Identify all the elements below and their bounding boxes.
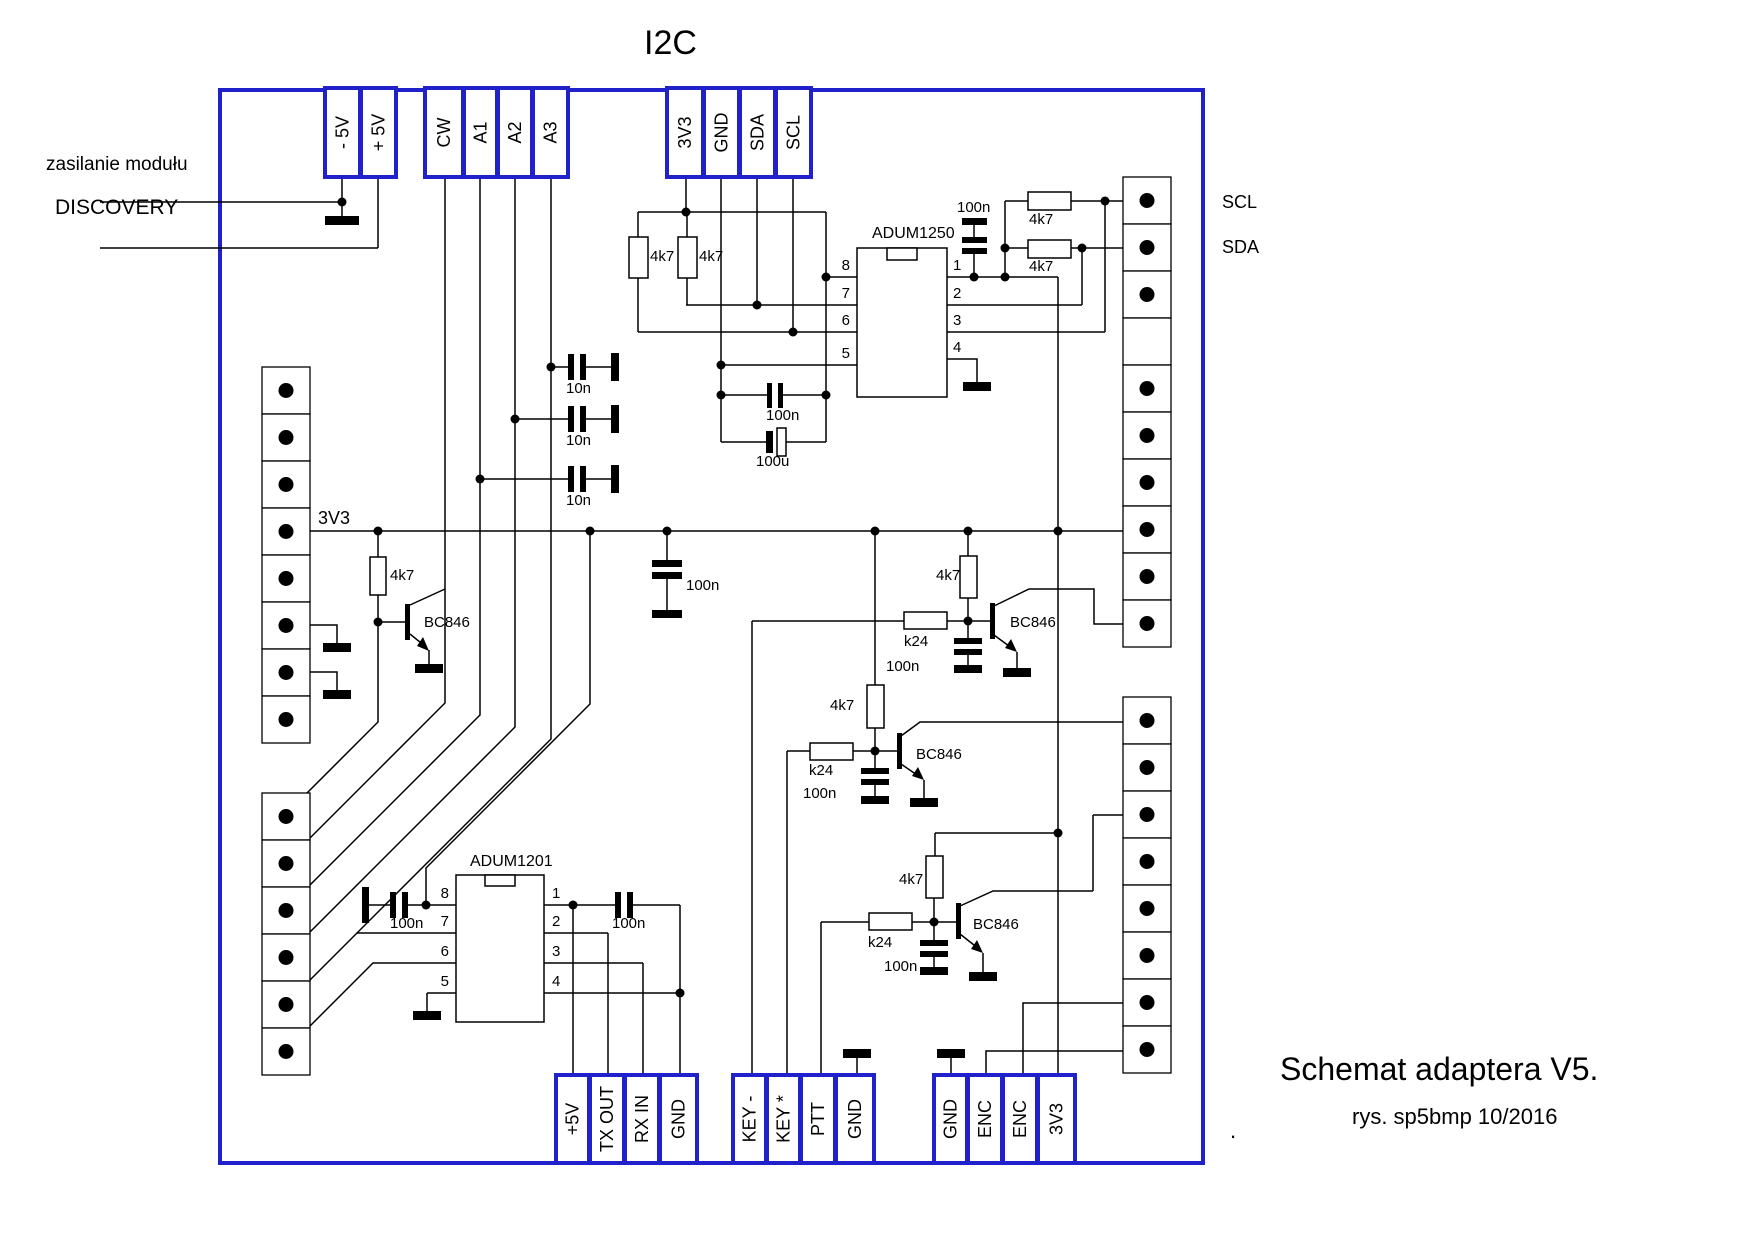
resistor-key2-pullup [867,685,884,728]
left-upper-header [262,367,310,743]
wire-key2-transistor [787,531,1145,1075]
component-value-cap-bulk: 100u [756,453,789,470]
resistor-pullup-scl2 [1028,192,1071,210]
connector-pin-label: KEY - [740,1096,760,1143]
connector-pin--5v: + 5V [361,88,396,177]
connector-pin-label: SCL [784,115,804,150]
junction-dot [511,415,520,424]
connector-pin-3v3: 3V3 [1038,1075,1075,1163]
ic-pin-number: 3 [953,312,961,329]
ic-pin-number: 2 [953,285,961,302]
connector-pin-label: CW [434,118,454,148]
header-pad [279,856,294,871]
junction-dot [1101,197,1110,206]
footer-credit: rys. sp5bmp 10/2016 [1352,1104,1557,1129]
connector-pin-label: SDA [748,114,768,151]
junction-dot [1054,527,1063,536]
component-value-rser-key2: k24 [809,762,833,779]
header-pad [1140,569,1155,584]
connector-pin-label: ENC [975,1100,995,1138]
component-value-cap-a2: 10n [566,432,591,449]
connector-pin--5v: +5V [556,1075,589,1163]
header-pad [1140,948,1155,963]
connector-pin-enc: ENC [1003,1075,1037,1163]
board-label: DISCOVERY [55,196,178,219]
header-pad [279,618,294,633]
junction-dot [1001,244,1010,253]
junction-dot [682,208,691,217]
junction-dot [753,301,762,310]
connector-pin-a2: A2 [498,88,532,177]
ic-pin-number: 1 [953,257,961,274]
ic-pin-number: 2 [552,913,560,930]
header-pad [1140,428,1155,443]
junction-dot [1078,244,1087,253]
connector-pin-label: PTT [808,1102,828,1136]
header-pad [279,903,294,918]
connector-pin-label: RX IN [632,1095,652,1143]
header-pad [1140,901,1155,916]
junction-dot [717,391,726,400]
junction-dot [964,527,973,536]
header-pad [1140,995,1155,1010]
header-pad [279,383,294,398]
ic-pin-number: 4 [552,973,560,990]
power-note-label: zasilanie modułu [46,154,188,175]
connector-pin-rx-in: RX IN [625,1075,659,1163]
connector-pin-label: + 5V [369,114,389,152]
header-pad [1140,713,1155,728]
junction-dot [1054,829,1063,838]
ic-pin-number: 8 [441,885,449,902]
connector-pin-gnd: GND [704,88,739,177]
sda-label: SDA [1222,237,1259,257]
component-value-q-key1: BC846 [1010,614,1056,631]
capacitor-vdd2-100n [767,383,783,408]
junction-dot [717,361,726,370]
resistor-key1-pullup [960,556,977,598]
schematic-canvas: - 5V+ 5VCWA1A2A33V3GNDSDASCL+5VTX OUTRX … [0,0,1754,1240]
footer-dot: . [1230,1118,1236,1143]
connector-pin-cw: CW [425,88,463,177]
component-value-res-key1: 4k7 [936,567,960,584]
right-lower-header [1123,697,1171,1073]
wire-bottom-gnd-enc [857,1003,1145,1075]
connector-pin-3v3: 3V3 [667,88,703,177]
header-pad [1140,1042,1155,1057]
connector-pin-label: GND [941,1099,961,1139]
resistor-pullup-scl1 [678,237,697,278]
junction-dot [871,527,880,536]
scl-label: SCL [1222,192,1257,212]
connector-pin-scl: SCL [776,88,811,177]
ic-pin-number: 7 [842,285,850,302]
ic-adum1201 [456,875,544,1022]
connector-pin-label: GND [669,1099,689,1139]
component-value-pullup-sda2: 4k7 [1029,258,1053,275]
connector-pin-label: KEY * [774,1095,794,1143]
header-pad [279,997,294,1012]
connector-pin-label: GND [845,1099,865,1139]
junction-dot [970,273,979,282]
connector-pin-label: 3V3 [675,116,695,148]
junction-dot [930,918,939,927]
junction-dot [964,617,973,626]
resistor-key2-series [810,743,853,760]
header-pad [279,665,294,680]
connector-pin-gnd: GND [660,1075,697,1163]
capacitor-bulk-100u [766,428,786,456]
right-upper-header [1123,177,1171,647]
connector-pin-a1: A1 [464,88,497,177]
connector-pin-gnd: GND [934,1075,967,1163]
header-pad [1140,807,1155,822]
connector-pin-label: TX OUT [597,1086,617,1152]
junction-dot [547,363,556,372]
connector-pin-key-: KEY - [733,1075,766,1163]
junction-dot [822,391,831,400]
junction-dot [676,989,685,998]
component-value-cap-key1: 100n [886,658,919,675]
connector-pin-label: ENC [1010,1100,1030,1138]
rail-3v3-label: 3V3 [318,508,350,528]
header-pad [1140,475,1155,490]
junction-dot [586,527,595,536]
junction-dot [422,901,431,910]
component-value-pullup-scl2: 4k7 [1029,211,1053,228]
junction-dot [374,618,383,627]
page-title: I2C [644,24,697,62]
junction-dot [822,273,831,282]
resistor-pullup-sda1 [629,237,648,278]
connector-pin-label: 3V3 [1047,1103,1067,1135]
ic-pin-number: 8 [842,257,850,274]
connector-pin-label: A3 [541,121,561,143]
wire-i2c-top-drops [686,177,793,442]
header-pad [1140,240,1155,255]
header-pad [279,950,294,965]
component-value-rser-ptt: k24 [868,934,892,951]
junction-dot [1001,273,1010,282]
component-value-cap-adum1201-in: 100n [390,915,423,932]
header-pad [279,571,294,586]
header-pad [279,712,294,727]
connector-pin--5v: - 5V [325,88,360,177]
component-value-cap-rail: 100n [686,577,719,594]
ic-pin-number: 6 [842,312,850,329]
wire-adum1250-left-net [638,212,857,442]
component-value-cap-key2: 100n [803,785,836,802]
component-value-q-ptt: BC846 [973,916,1019,933]
resistor-pullup-sda2 [1028,240,1071,258]
connector-pin-tx-out: TX OUT [590,1075,624,1163]
junction-dot [374,527,383,536]
header-pad [279,1044,294,1059]
header-pad [1140,287,1155,302]
component-value-res-key2: 4k7 [830,697,854,714]
header-pad [279,524,294,539]
header-pad [279,430,294,445]
junction-dot [476,475,485,484]
capacitor-10n-group [568,353,619,493]
ic-adum1250 [857,248,947,397]
junction-dot [663,527,672,536]
ic-pin-number: 1 [552,885,560,902]
component-value-q-cw: BC846 [424,614,470,631]
footer-title: Schemat adaptera V5. [1280,1051,1598,1087]
component-value-cap-a3: 10n [566,380,591,397]
connector-pin-enc: ENC [968,1075,1002,1163]
header-pad [1140,616,1155,631]
connector-pin-label: A1 [471,121,491,143]
ic-pin-number: 5 [842,345,850,362]
component-value-rser-key1: k24 [904,633,928,650]
resistor-ptt-pullup [926,856,943,898]
connector-pin-key-: KEY * [767,1075,800,1163]
ic-pin-number: 5 [441,973,449,990]
header-pad [279,477,294,492]
component-value-pullup-sda1: 4k7 [650,248,674,265]
connector-pin-a3: A3 [533,88,568,177]
component-value-cap-vdd1: 100n [957,199,990,216]
connector-pin-label: A2 [505,121,525,143]
schematic-page: - 5V+ 5VCWA1A2A33V3GNDSDASCL+5VTX OUTRX … [0,0,1754,1240]
junction-dot [569,901,578,910]
ic-adum1201-label: ADUM1201 [470,853,553,870]
header-pad [1140,381,1155,396]
component-value-cap-vdd2: 100n [766,407,799,424]
left-lower-header [262,793,310,1075]
junction-dot [789,328,798,337]
component-value-pullup-scl1: 4k7 [699,248,723,265]
component-value-cap-adum1201-out: 100n [612,915,645,932]
ic-pin-number: 4 [953,339,961,356]
wire-10n-caps [480,367,611,479]
connector-pin-label: - 5V [333,116,353,149]
header-pad [1140,522,1155,537]
ic-pin-number: 6 [441,943,449,960]
component-value-cap-ptt: 100n [884,958,917,975]
header-pad [279,809,294,824]
resistor-ptt-series [869,913,912,930]
ic-pin-number: 3 [552,943,560,960]
header-pad [1140,193,1155,208]
component-value-q-key2: BC846 [916,746,962,763]
connector-pin-label: GND [712,113,732,153]
header-pad [1140,854,1155,869]
component-value-cap-a1: 10n [566,492,591,509]
resistor-key1-series [904,612,947,629]
connector-pin-gnd: GND [836,1075,874,1163]
header-pad [1140,760,1155,775]
ic-pin-number: 7 [441,913,449,930]
header-cell [1123,318,1171,365]
component-value-res-ptt: 4k7 [899,871,923,888]
wire-key1-transistor [752,531,1145,1075]
connector-pin-ptt: PTT [801,1075,835,1163]
resistor-cw-pullup [370,557,386,595]
ic-adum1250-label: ADUM1250 [872,225,955,242]
junction-dot [338,198,347,207]
component-value-res-cw: 4k7 [390,567,414,584]
junction-dot [871,747,880,756]
connector-pin-label: +5V [563,1103,583,1136]
connector-pin-sda: SDA [740,88,775,177]
